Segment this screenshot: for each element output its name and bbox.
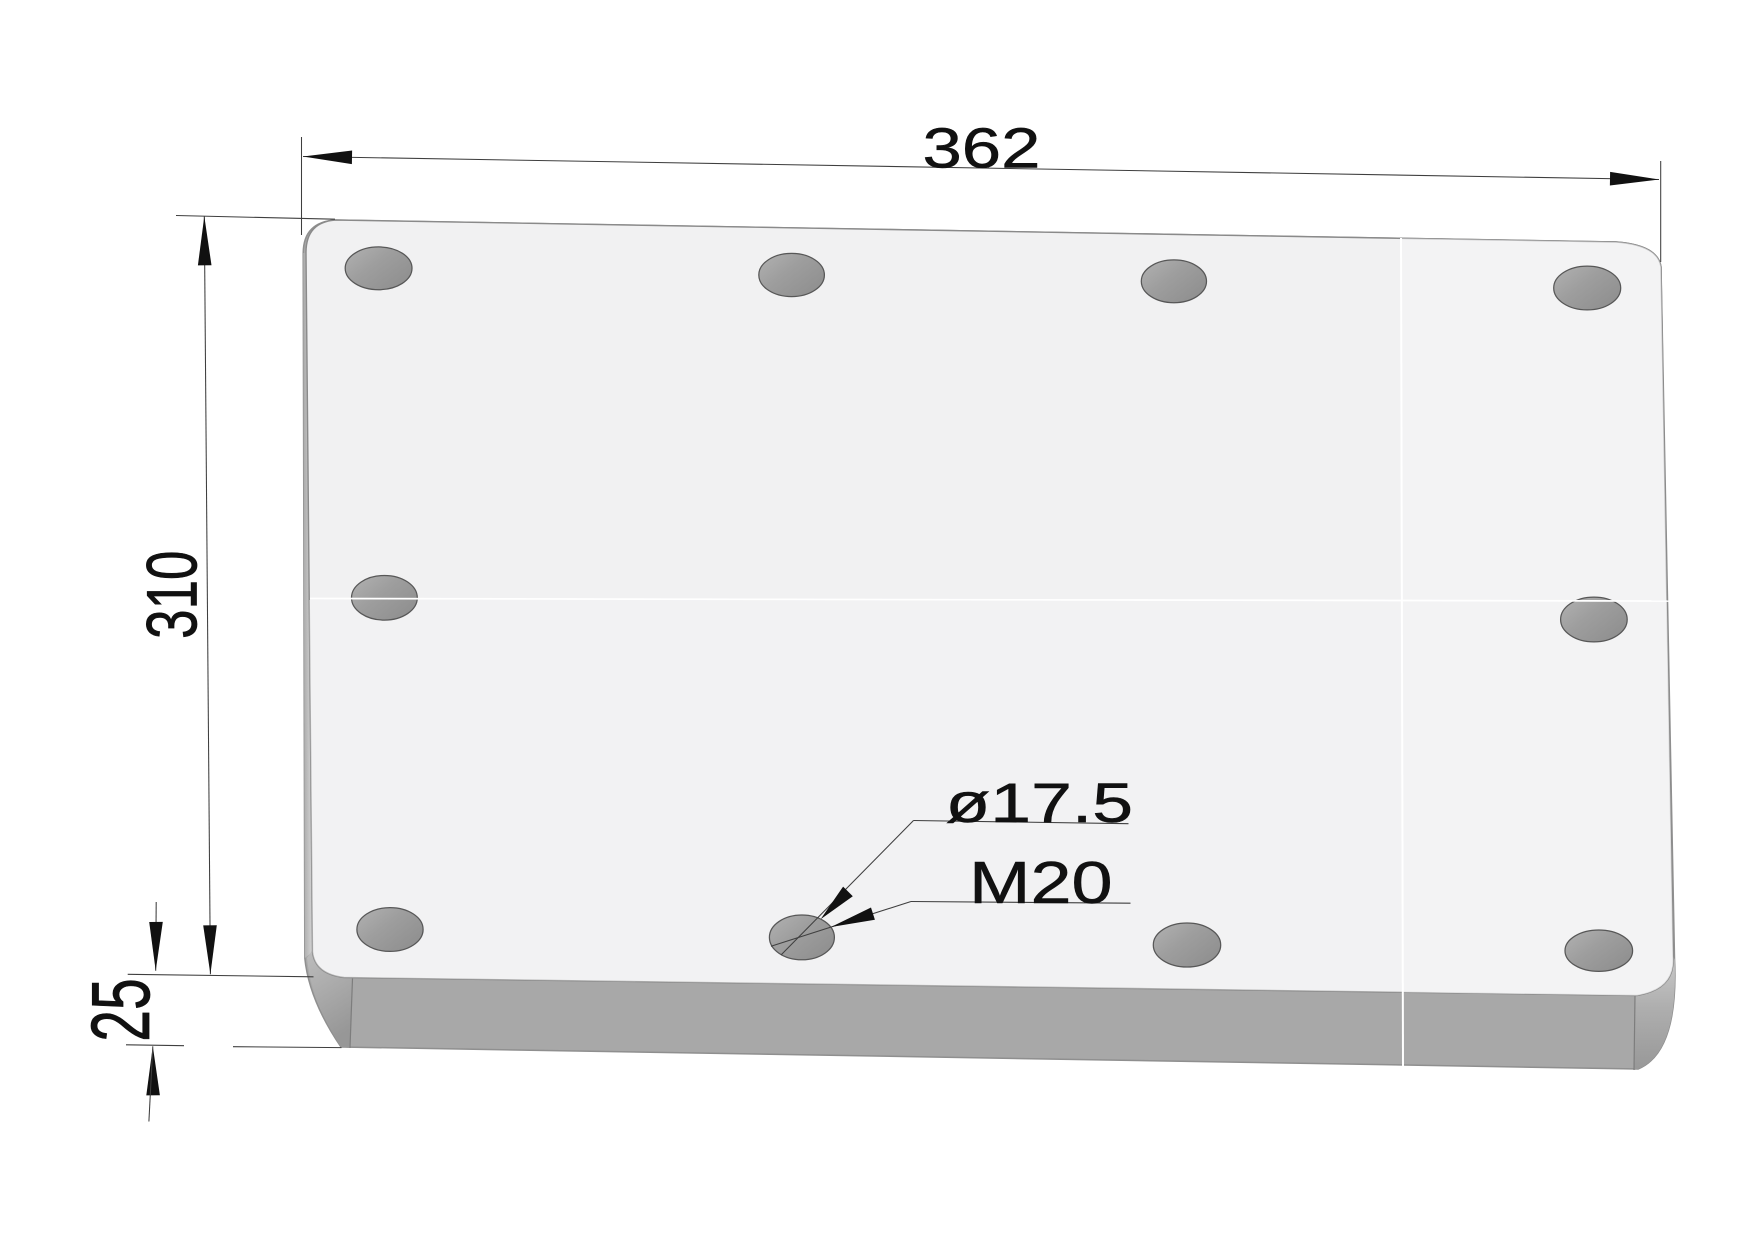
svg-text:ø17.5: ø17.5 [946,771,1134,834]
svg-text:M20: M20 [969,850,1113,917]
svg-text:310: 310 [133,550,213,638]
svg-text:25: 25 [76,978,168,1041]
svg-text:362: 362 [923,116,1041,180]
